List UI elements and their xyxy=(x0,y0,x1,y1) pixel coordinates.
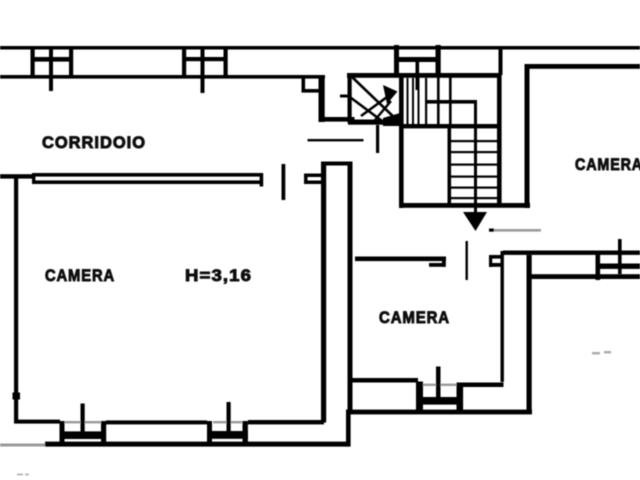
svg-text:H=3,16: H=3,16 xyxy=(185,266,252,285)
svg-text:CAMERA: CAMERA xyxy=(45,266,115,285)
svg-text:CAMERA: CAMERA xyxy=(575,155,640,174)
svg-text:CORRIDOIO: CORRIDOIO xyxy=(42,133,146,152)
svg-text:CAMERA: CAMERA xyxy=(379,308,450,327)
